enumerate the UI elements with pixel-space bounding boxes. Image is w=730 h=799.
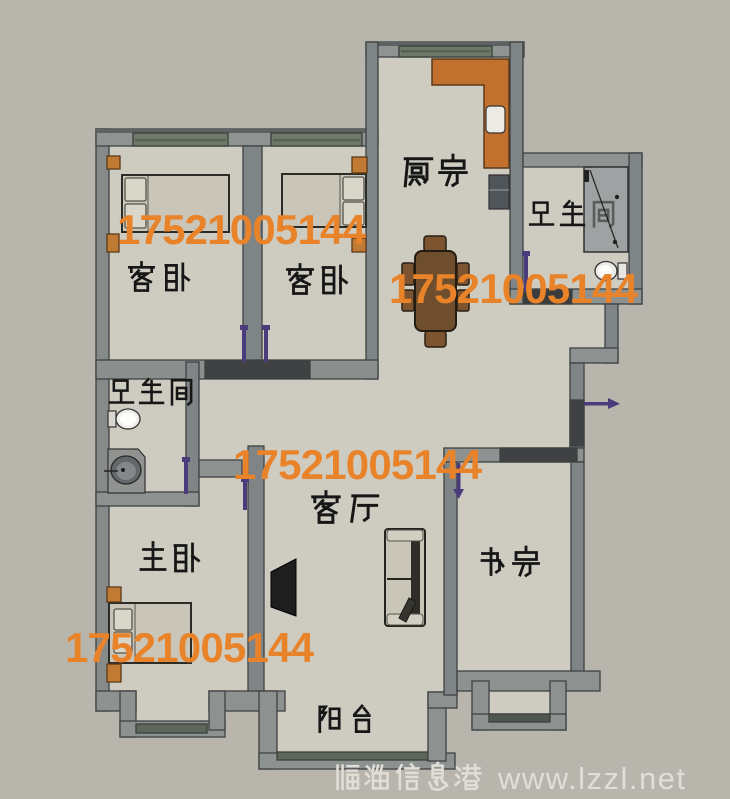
- svg-text:www.lzzl.net: www.lzzl.net: [497, 761, 687, 796]
- svg-text:17521005144: 17521005144: [233, 441, 483, 488]
- svg-text:17521005144: 17521005144: [117, 206, 367, 253]
- svg-text:17521005144: 17521005144: [65, 624, 315, 671]
- svg-text:17521005144: 17521005144: [389, 265, 639, 312]
